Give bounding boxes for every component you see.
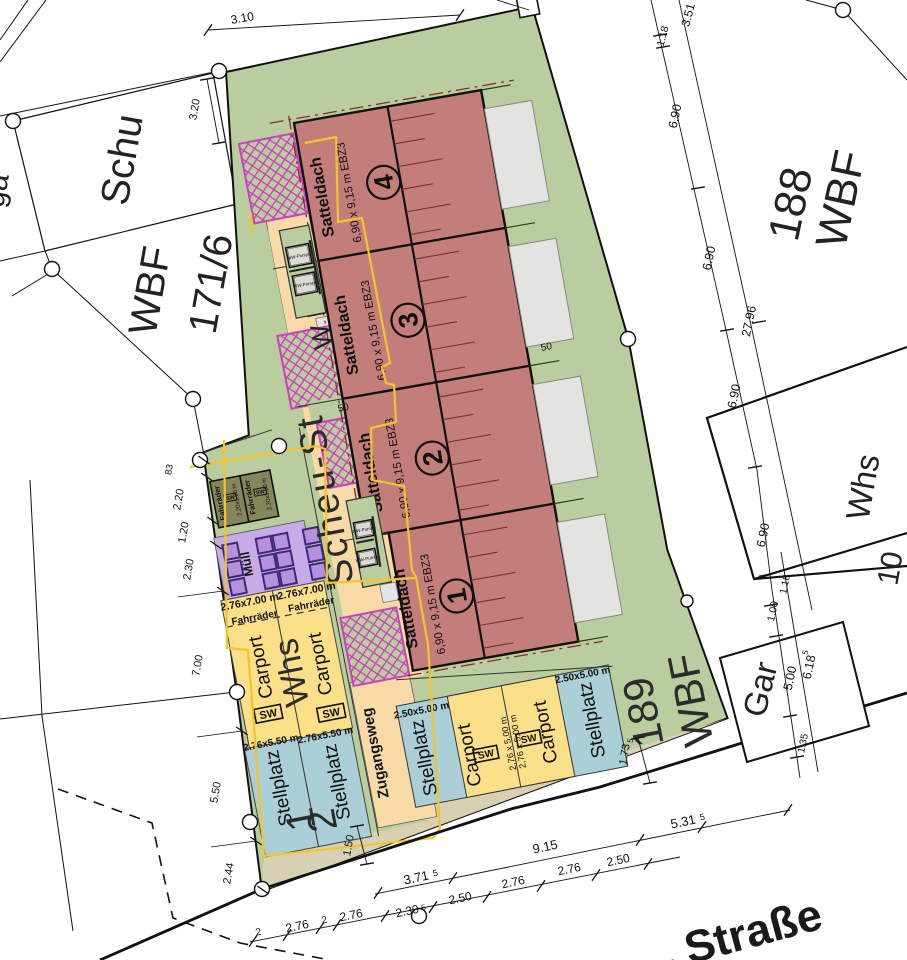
- svg-text:83: 83: [163, 463, 176, 475]
- svg-text:10: 10: [871, 549, 907, 588]
